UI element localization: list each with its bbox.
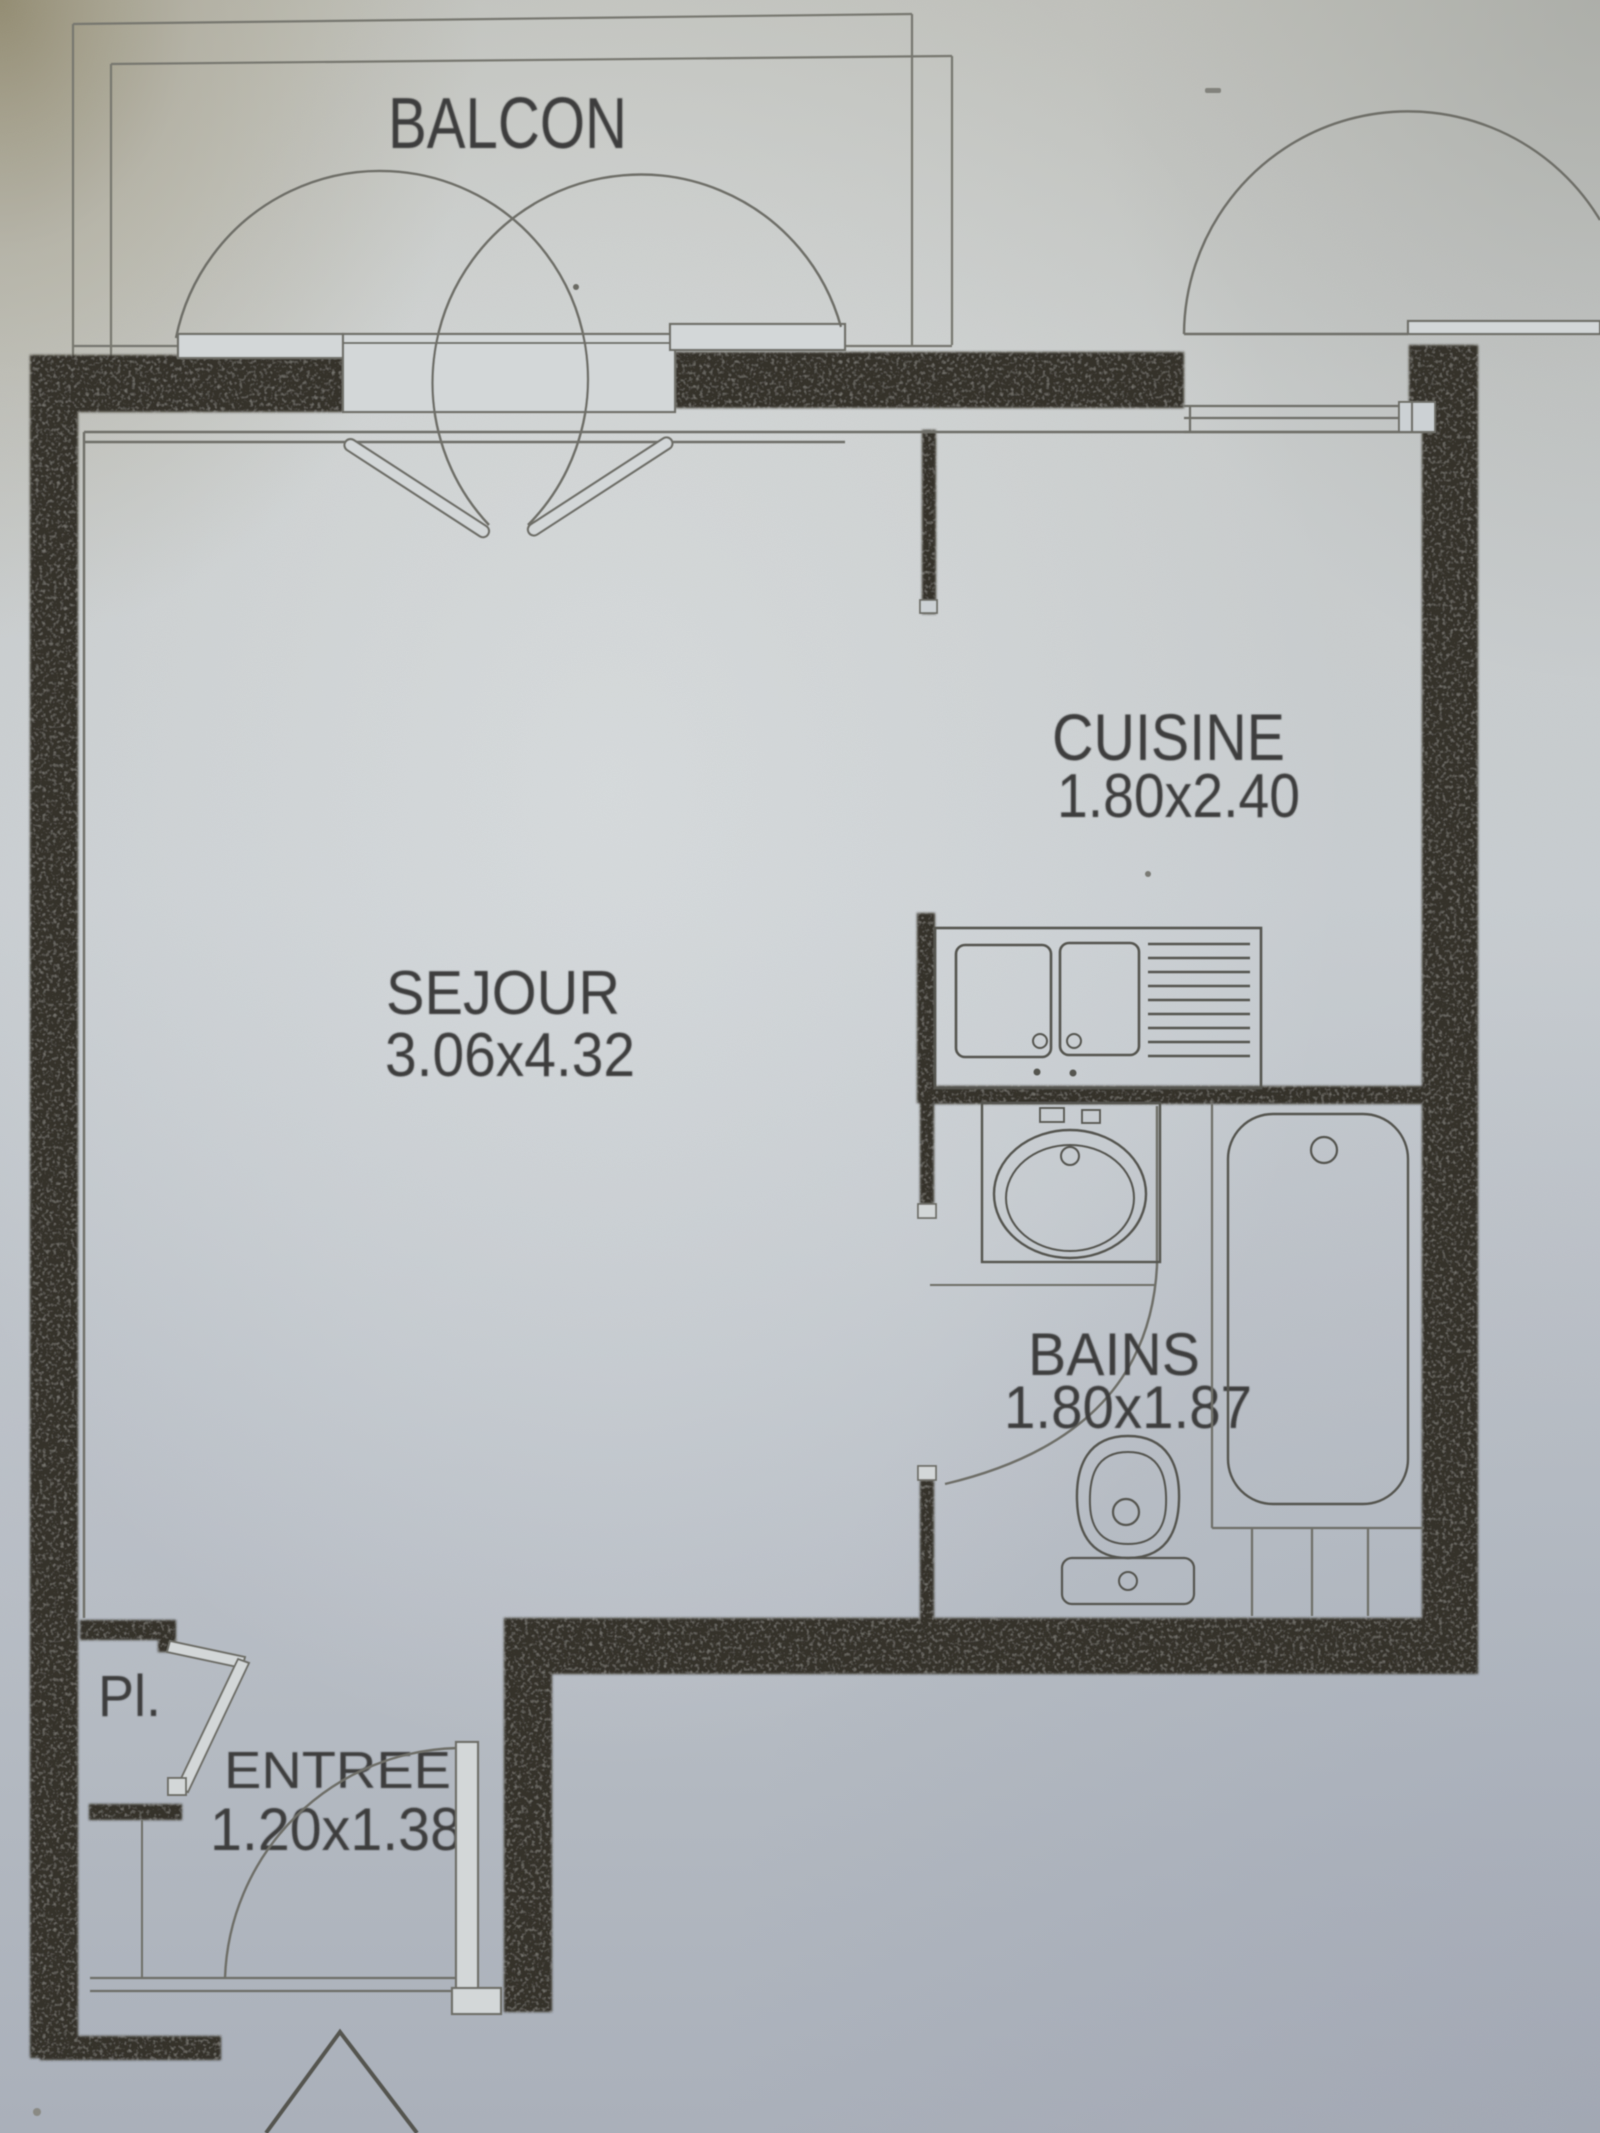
svg-text:3.06x4.32: 3.06x4.32 xyxy=(385,1021,635,1090)
svg-text:1.80x2.40: 1.80x2.40 xyxy=(1057,762,1300,831)
svg-text:SEJOUR: SEJOUR xyxy=(386,959,620,1028)
svg-text:1.20x1.38: 1.20x1.38 xyxy=(210,1796,462,1863)
svg-text:BALCON: BALCON xyxy=(388,84,627,164)
svg-text:ENTREE: ENTREE xyxy=(224,1742,451,1800)
svg-text:1.80x1.87: 1.80x1.87 xyxy=(1004,1374,1252,1441)
svg-text:Pl.: Pl. xyxy=(98,1664,161,1729)
